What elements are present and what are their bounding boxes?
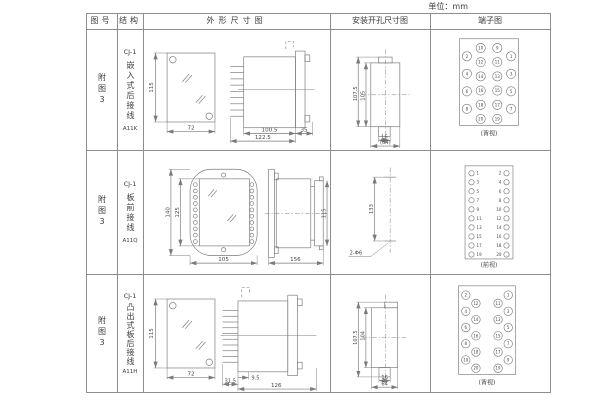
terminal-number: 18: [496, 243, 502, 248]
terminal-number: 13: [496, 317, 502, 322]
terminal-number: 17: [477, 243, 483, 248]
terminal-pin: [469, 225, 474, 230]
terminal-pins: 2468135710121416182091113151719: [462, 43, 515, 123]
header-structure: 结构: [117, 13, 143, 29]
terminal-number: 18: [478, 102, 484, 107]
terminal-number: 5: [477, 189, 480, 194]
terminal-number: 6: [499, 189, 502, 194]
figure-no-row3: 附图3: [98, 316, 106, 350]
header-install-dims: 安装开孔尺寸图: [330, 13, 430, 29]
dim-plate-height: 140: [165, 207, 171, 218]
terminal-number: 13: [495, 74, 501, 79]
terminal-number: 20: [473, 366, 479, 371]
hole-spec-label: 2-Φ6: [350, 251, 363, 257]
terminal-pin: [504, 234, 509, 239]
structure-model-row2: CJ-1: [124, 180, 137, 188]
row1-divider: [86, 150, 550, 151]
terminal-number: 14: [496, 225, 502, 230]
dim-c: 126: [271, 383, 282, 389]
terminal-number: 8: [466, 106, 469, 111]
dim-inner-height: 105: [361, 91, 367, 101]
front-view-body: [200, 179, 250, 246]
structure-code-row3: A11H: [123, 369, 138, 375]
header-terminal: 端子图: [430, 13, 550, 29]
terminal-number: 15: [496, 333, 502, 338]
terminal-comb: [230, 66, 243, 116]
terminal-number: 9: [507, 357, 510, 362]
terminal-pin: [469, 252, 474, 257]
view-label: (背视): [479, 378, 496, 386]
outline-drawing-a11q: 140 125 105 156 115: [146, 152, 328, 267]
structure-model-row3: CJ-1: [124, 292, 137, 300]
header-outline-dims: 外形尺寸图: [143, 13, 330, 29]
terminal-pin: [469, 198, 474, 203]
terminal-pin: [469, 171, 474, 176]
terminal-diagram-a11q: 1234567891011121314151617181920 (前视): [452, 164, 526, 270]
terminal-pin: [504, 198, 509, 203]
terminal-number: 1: [477, 171, 480, 176]
terminal-number: 5: [510, 89, 513, 94]
table-border-bottom: [86, 392, 550, 393]
terminal-number: 11: [496, 301, 502, 306]
figure-no-row1: 附图3: [98, 73, 106, 107]
unit-label: 单位：mm: [404, 1, 468, 12]
dim-plate-width: 105: [218, 257, 229, 263]
terminal-number: 5: [507, 325, 510, 330]
terminal-number: 7: [510, 106, 513, 111]
structure-cell-row3: CJ-1 凸出式板后接线 A11H: [117, 274, 143, 392]
structure-mount-row3: 凸出式板后接线: [126, 303, 134, 366]
dim-front-width: 72: [187, 372, 194, 378]
terminal-number: 9: [496, 46, 499, 51]
terminal-pin: [469, 207, 474, 212]
terminal-number: 4: [499, 180, 502, 185]
terminal-number: 6: [465, 325, 468, 330]
terminal-number: 17: [495, 102, 501, 107]
install-drawing-a11q: 133 2-Φ6: [334, 152, 426, 270]
dim-front-height: 115: [149, 82, 155, 93]
mounting-hole: [206, 359, 213, 366]
terminal-number: 7: [477, 198, 480, 203]
figure-no-cell-row3: 附图3: [86, 274, 117, 392]
dim-inner-height: 104: [360, 331, 366, 341]
terminal-pin: [504, 189, 509, 194]
relay-dimension-sheet: 单位：mm 图号 结构 外形尺寸图 安装开孔尺寸图 端子图 附图3 CJ-1 嵌…: [0, 0, 600, 400]
terminal-number: 16: [496, 234, 502, 239]
terminal-number: 1: [507, 293, 510, 298]
terminal-number: 1: [510, 54, 513, 59]
terminal-number: 12: [496, 216, 502, 221]
terminal-number: 20: [478, 117, 484, 122]
terminal-number: 17: [496, 349, 502, 354]
dim-total-width: 64: [381, 381, 387, 387]
terminal-screw-columns: [193, 183, 253, 244]
structure-cell-row1: CJ-1 嵌入式后接线 A11K: [117, 29, 143, 150]
dim-outer-height: 107.5: [353, 86, 359, 101]
terminal-number: 8: [465, 341, 468, 346]
hook-outline: [242, 288, 250, 298]
row2-divider: [86, 274, 550, 275]
terminal-pin: [504, 207, 509, 212]
structure-mount-row1: 嵌入式后接线: [126, 61, 134, 121]
dim-body-length: 100.5: [262, 128, 278, 134]
terminal-number: 18: [473, 349, 479, 354]
terminal-number: 2: [466, 54, 469, 59]
terminal-number: 3: [507, 309, 510, 314]
terminal-pin: [504, 180, 509, 185]
terminal-pin: [469, 216, 474, 221]
side-view-body: [238, 301, 288, 372]
dim-outer-height: 107.5: [353, 330, 359, 344]
figure-no-row2: 附图3: [98, 195, 106, 229]
terminal-pin: [469, 243, 474, 248]
terminal-pins: 1234567891011121314151617181920: [469, 171, 509, 258]
terminal-number: 11: [495, 60, 501, 65]
terminal-number: 7: [507, 341, 510, 346]
terminal-number: 19: [496, 366, 502, 371]
mounting-hole: [206, 113, 213, 120]
figure-no-cell-row1: 附图3: [86, 29, 117, 150]
structure-code-row1: A11K: [123, 126, 137, 132]
outline-drawing-a11h: 115 72 9.5 31.5 126: [146, 276, 328, 391]
terminal-number: 12: [473, 301, 479, 306]
terminal-diagram-a11h: 2468101214161820111315171913579 (背视): [450, 284, 524, 390]
terminal-number: 4: [466, 71, 469, 76]
terminal-number: 9: [477, 207, 480, 212]
figure-no-cell-row2: 附图3: [86, 150, 117, 274]
terminal-pin: [504, 171, 509, 176]
terminal-number: 3: [510, 71, 513, 76]
terminal-number: 14: [478, 74, 484, 79]
outline-drawing-a11k: 115 72 100.5 35 122.5: [146, 30, 328, 145]
dim-hole-pitch: 133: [369, 204, 375, 214]
terminal-number: 8: [499, 198, 502, 203]
col-divider-4: [430, 13, 431, 393]
dim-b: 31.5: [225, 378, 236, 384]
view-label: (背视): [481, 130, 498, 138]
install-drawing-a11k: 107.5 105 16 (64): [334, 30, 426, 148]
terminal-number: 11: [477, 216, 483, 221]
front-view-body: [167, 53, 215, 122]
dim-total-width: (64): [380, 140, 391, 146]
terminal-comb: [223, 311, 238, 363]
terminal-pins: 2468101214161820111315171913579: [462, 291, 513, 373]
dim-tab-width: 16: [381, 375, 387, 381]
terminal-number: 13: [477, 225, 483, 230]
terminal-pin: [469, 234, 474, 239]
terminal-number: 2: [499, 171, 502, 176]
terminal-number: 19: [495, 117, 501, 122]
terminal-number: 12: [478, 60, 484, 65]
terminal-number: 2: [465, 293, 468, 298]
front-view-plate: [190, 169, 257, 255]
dim-a: 9.5: [251, 375, 259, 381]
mounting-hole: [170, 302, 177, 309]
terminal-pin: [469, 180, 474, 185]
terminal-number: 15: [495, 88, 501, 93]
terminal-number: 19: [477, 252, 483, 257]
table-border-right: [550, 13, 551, 393]
hook-outline: [286, 42, 294, 50]
terminal-number: 10: [478, 46, 484, 51]
terminal-pin: [504, 243, 509, 248]
structure-cell-row2: CJ-1 板前接线 A11Q: [117, 150, 143, 274]
col-divider-3: [330, 13, 331, 393]
terminal-number: 16: [478, 88, 484, 93]
dim-front-height: 115: [149, 328, 155, 339]
terminal-number: 3: [477, 180, 480, 185]
structure-code-row2: A11Q: [122, 238, 137, 244]
side-view-body: [244, 57, 296, 128]
mounting-hole: [170, 56, 177, 63]
terminal-diagram-a11k: 2468135710121416182091113151719 (背视): [452, 36, 526, 142]
front-view-body: [167, 299, 215, 368]
dim-side-height: 115: [322, 208, 328, 218]
structure-mount-row2: 板前接线: [126, 193, 134, 233]
terminal-number: 16: [473, 333, 479, 338]
terminal-number: 20: [496, 252, 502, 257]
terminal-pin: [504, 252, 509, 257]
terminal-pin: [504, 216, 509, 221]
dim-front-width: 72: [187, 126, 194, 132]
terminal-number: 6: [466, 89, 469, 94]
terminal-pin: [469, 189, 474, 194]
dim-body-height: 125: [175, 207, 181, 218]
cutout-top-tab: [385, 302, 398, 308]
view-label: (前视): [481, 261, 498, 269]
terminal-number: 4: [465, 309, 468, 314]
dim-flange: 35: [301, 128, 309, 134]
terminal-number: 10: [463, 357, 469, 362]
header-figure-no: 图号: [86, 13, 117, 29]
install-drawing-a11h: 107.5 104 16 64: [334, 276, 423, 390]
terminal-pin: [504, 225, 509, 230]
terminal-number: 14: [473, 317, 479, 322]
dim-total-length: 122.5: [255, 135, 271, 141]
terminal-number: 10: [496, 207, 502, 212]
terminal-number: 15: [477, 234, 483, 239]
col-divider-2: [143, 13, 144, 393]
dim-side-length: 156: [290, 257, 301, 263]
structure-model-row1: CJ-1: [124, 48, 137, 56]
